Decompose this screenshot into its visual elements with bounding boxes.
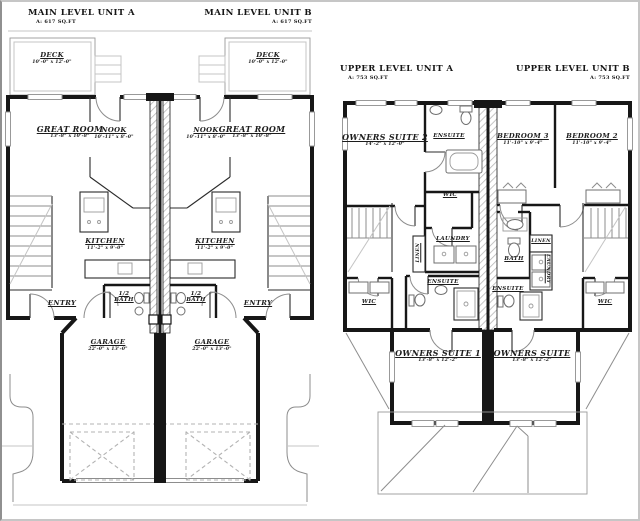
kitchen-island: [80, 192, 108, 232]
room-label-deck-a: DECK 10'-0" x 12'-0": [32, 52, 72, 65]
toilet-icon: [135, 293, 144, 304]
window: [506, 101, 530, 106]
shower-icon: [454, 288, 478, 320]
upper-level-plan: [343, 100, 633, 494]
suite2-door-arc: [395, 206, 415, 226]
room-label-great-room-b: GREAT ROOM 13'-8" x 10'-8": [219, 125, 286, 139]
main-level-unit-b-linework: [160, 38, 319, 502]
plan-title: MAIN LEVEL UNIT A: [28, 8, 135, 19]
window: [28, 95, 62, 100]
room-label-nook-a: NOOK 10'-11" x 8'-0": [94, 127, 134, 140]
room-label-entry-a: ENTRY: [48, 300, 76, 308]
parking-stall: [70, 432, 134, 480]
deck-steps: [95, 56, 121, 82]
sink-icon: [135, 307, 143, 315]
bedroom2-door-arc: [560, 205, 584, 227]
room-label-entry-b: ENTRY: [244, 300, 272, 308]
window: [628, 118, 633, 150]
closet-shelf: [370, 282, 389, 293]
window: [395, 101, 417, 106]
plan-title: UPPER LEVEL UNIT B: [516, 64, 630, 75]
entry-door-arc: [84, 292, 110, 318]
toilet-icon: [461, 112, 471, 125]
plan-area: A: 753 SQ.FT: [516, 75, 630, 81]
washer-icon: [434, 246, 454, 263]
party-wall-main: [146, 93, 174, 483]
sink-icon: [507, 220, 523, 230]
room-label-ensuite-b: ENSUITE: [492, 286, 523, 292]
room-label-owners-suite-b: OWNERS SUITE 13'-8" x 12'-2": [494, 349, 571, 363]
window: [576, 352, 581, 382]
room-label-kitchen-a: KITCHEN 11'-2" x 9'-0": [85, 238, 124, 251]
room-label-bath-b: BATH: [504, 256, 523, 262]
room-label-linen-a: LINEN: [416, 243, 422, 263]
toilet-icon: [504, 295, 514, 307]
room-label-laundry-b: LAUNDRY: [544, 254, 550, 283]
toilet-icon: [509, 243, 520, 257]
stairs: [10, 196, 52, 290]
plan-title-main-unit-b: MAIN LEVEL UNIT B A: 617 SQ.FT: [204, 8, 312, 25]
room-label-owners-suite-2: OWNERS SUITE 2 14'-2" x 12'-0": [342, 133, 428, 147]
kitchen-counter: [85, 260, 150, 278]
kitchen-island: [212, 192, 240, 232]
window: [356, 101, 386, 106]
window: [412, 421, 434, 427]
room-label-laundry-a: LAUNDRY: [436, 236, 470, 242]
closet-shelf: [349, 282, 368, 293]
window: [436, 421, 458, 427]
room-label-ensuite-a-top: ENSUITE: [433, 133, 464, 139]
window: [6, 112, 11, 146]
plan-area: A: 617 SQ.FT: [204, 19, 312, 25]
room-label-kitchen-b: KITCHEN 11'-2" x 9'-0": [195, 238, 234, 251]
closet: [498, 190, 526, 203]
room-label-owners-suite-1: OWNERS SUITE 1 13'-8" x 12'-2": [395, 349, 481, 363]
plan-title-main-unit-a: MAIN LEVEL UNIT A A: 617 SQ.FT: [28, 8, 135, 25]
stairs: [268, 196, 310, 290]
room-label-wic-a: WIC: [443, 192, 457, 198]
plan-title-upper-unit-b: UPPER LEVEL UNIT B A: 753 SQ.FT: [516, 64, 630, 81]
sink-icon: [177, 307, 185, 315]
dryer-icon: [456, 246, 476, 263]
room-label-bedroom-3: BEDROOM 3 11'-10" x 9'-4": [497, 133, 549, 146]
plan-area: A: 617 SQ.FT: [28, 19, 135, 25]
walkway: [287, 374, 310, 502]
stairs: [347, 203, 392, 272]
party-wall-upper: [474, 100, 502, 425]
room-label-half-bath-a: 1/2 BATH: [113, 291, 135, 304]
window: [448, 101, 472, 106]
window: [510, 421, 532, 427]
plan-area: A: 753 SQ.FT: [340, 75, 453, 81]
window: [124, 95, 148, 100]
main-level-unit-a-linework: [1, 38, 160, 502]
kitchen-counter: [170, 260, 235, 278]
window: [534, 421, 556, 427]
plan-title: UPPER LEVEL UNIT A: [340, 64, 453, 75]
stairs: [583, 203, 628, 272]
entry-door-arc: [210, 292, 236, 318]
deck-door-arc: [96, 97, 120, 121]
closet-shelf: [586, 282, 604, 293]
window: [572, 101, 596, 106]
sink-icon: [430, 106, 442, 115]
window: [172, 95, 196, 100]
window: [390, 352, 395, 382]
room-label-linen-b: LINEN: [531, 239, 551, 245]
window: [258, 95, 292, 100]
room-label-garage-a: GARAGE 22'-0" x 13'-0": [88, 339, 128, 352]
room-label-garage-b: GARAGE 22'-0" x 13'-0": [192, 339, 232, 352]
closet: [586, 190, 620, 203]
closet-shelf: [606, 282, 624, 293]
walkway: [10, 374, 33, 502]
ensuite-door-arc: [425, 152, 445, 172]
room-label-ensuite-a-lower: ENSUITE: [427, 279, 458, 285]
deck-steps: [199, 56, 225, 82]
main-level-plan: [1, 31, 319, 505]
plan-title: MAIN LEVEL UNIT B: [204, 8, 312, 19]
toilet-icon: [415, 294, 425, 306]
room-label-wic-right: WIC: [598, 299, 612, 305]
room-label-wic-left: WIC: [362, 299, 376, 305]
floorplan-sheet: MAIN LEVEL UNIT A A: 617 SQ.FT MAIN LEVE…: [0, 0, 640, 521]
window: [310, 112, 315, 146]
deck-door-arc: [200, 97, 224, 121]
parking-stall: [186, 432, 250, 480]
room-label-half-bath-b: 1/2 BATH: [185, 291, 207, 304]
room-label-bedroom-2: BEDROOM 2 11'-10" x 9'-4": [566, 133, 618, 146]
plan-title-upper-unit-a: UPPER LEVEL UNIT A A: 753 SQ.FT: [340, 64, 453, 81]
sink-icon: [435, 286, 447, 295]
room-label-deck-b: DECK 10'-0" x 12'-0": [248, 52, 288, 65]
